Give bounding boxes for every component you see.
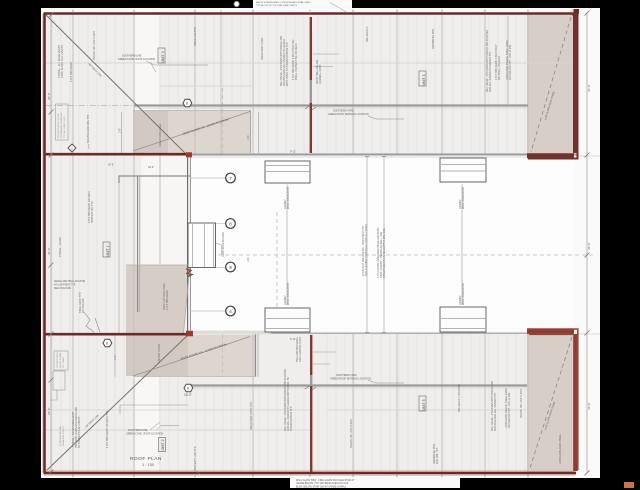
svg-text:PREFIN. MTL CAP FLASH: PREFIN. MTL CAP FLASH — [520, 389, 523, 418]
svg-text:AND FLASHING DRIP EDGE CONT. A: AND FLASHING DRIP EDGE CONT. ALL SIDES — [365, 224, 368, 276]
svg-text:28'-0": 28'-0" — [47, 407, 51, 415]
svg-text:PROTECT. BD. TYP.: PROTECT. BD. TYP. — [91, 201, 94, 223]
svg-text:GREEN CONC. ROOF LOCATION: GREEN CONC. ROOF LOCATION — [126, 432, 163, 435]
svg-text:AND VEL. DRAINS TO LEADER TYP.: AND VEL. DRAINS TO LEADER TYP. — [489, 51, 492, 92]
svg-text:STORM SYSTEM TYP.: STORM SYSTEM TYP. — [290, 406, 293, 431]
svg-text:RIDGE VENT CONT. TYP.: RIDGE VENT CONT. TYP. — [250, 402, 253, 430]
svg-text:RIDGE LINE TYP.: RIDGE LINE TYP. — [194, 26, 197, 46]
svg-text:SCUPPER AND VEL. DRAINS TYP.: SCUPPER AND VEL. DRAINS TYP. — [494, 392, 497, 431]
svg-text:ON PURLINS: ON PURLINS — [82, 298, 85, 313]
svg-text:CRICKET SLOPE: CRICKET SLOPE — [158, 344, 161, 363]
svg-text:RWL AND O.F. SCUPPER: RWL AND O.F. SCUPPER — [458, 384, 461, 412]
svg-text:ROOF OVER ENTRY: ROOF OVER ENTRY — [463, 186, 465, 209]
svg-text:UNIT 1: UNIT 1 — [106, 245, 110, 256]
svg-text:RWL AND O.F.: RWL AND O.F. — [366, 26, 369, 42]
svg-text:GREEN CONC. ROOF LOCATION: GREEN CONC. ROOF LOCATION — [118, 58, 155, 61]
svg-text:TYPICAL - 40 MID: TYPICAL - 40 MID — [59, 237, 62, 257]
svg-text:SEE CIVIL DWG: SEE CIVIL DWG — [54, 288, 71, 290]
svg-text:28'-0": 28'-0" — [47, 92, 51, 100]
svg-text:1 : 150: 1 : 150 — [142, 462, 155, 467]
svg-text:SWALE AND RWL LOCATION: SWALE AND RWL LOCATION — [54, 280, 85, 283]
svg-text:GREEN ROOF SETBACK LOCATION: GREEN ROOF SETBACK LOCATION — [330, 377, 371, 380]
svg-text:6: 6 — [106, 342, 108, 346]
svg-text:36'-0": 36'-0" — [587, 242, 591, 250]
svg-text:1'-6": 1'-6" — [119, 128, 122, 133]
svg-text:LEADER AT LOW PT: LEADER AT LOW PT — [62, 425, 65, 446]
svg-text:GREEN ROOF SETBACK LOCATION: GREEN ROOF SETBACK LOCATION — [328, 113, 369, 116]
svg-text:TYP. SIDES: TYP. SIDES — [63, 356, 65, 368]
svg-text:PREFIN. MTL CAP FLASH: PREFIN. MTL CAP FLASH — [350, 419, 353, 448]
svg-text:9'-11": 9'-11" — [290, 338, 296, 341]
svg-text:34'-0": 34'-0" — [587, 84, 591, 92]
svg-text:ROLL CLASS 'BBQ' - FIRE ALARM: ROLL CLASS 'BBQ' - FIRE ALARM PACKAGE ST… — [296, 479, 355, 482]
svg-text:TO STORM TYP. AT LOW PT.: TO STORM TYP. AT LOW PT. — [78, 416, 81, 448]
svg-text:MECH. SCREEN WALL LOCATION SEE: MECH. SCREEN WALL LOCATION SEE DETAIL 5/… — [256, 1, 312, 4]
svg-text:1-60: 1-60 — [248, 257, 250, 262]
svg-text:ROOF OVER ENTRY: ROOF OVER ENTRY — [288, 282, 290, 305]
svg-text:UNIT 3: UNIT 3 — [161, 51, 165, 62]
svg-text:CAP FLASHING CONT.: CAP FLASHING CONT. — [299, 336, 302, 362]
svg-text:ROOF OVER ENTRY: ROOF OVER ENTRY — [463, 282, 465, 305]
svg-text:SCUPPER AND RWL TYP.: SCUPPER AND RWL TYP. — [87, 114, 90, 143]
svg-text:FIREWALL CONT.: FIREWALL CONT. — [319, 64, 322, 84]
svg-text:ROOF STAIR ACCESS: ROOF STAIR ACCESS — [222, 232, 225, 257]
svg-text:WITH CONN. TO STORM SYSTEM TYP: WITH CONN. TO STORM SYSTEM TYP. — [286, 42, 289, 86]
svg-text:BLDG. BELOW STAIR GAS AT GRADE: BLDG. BELOW STAIR GAS AT GRADE IN WALL — [296, 485, 347, 488]
svg-text:LOW SLOPE ROOF PANEL: LOW SLOPE ROOF PANEL — [559, 433, 562, 464]
svg-text:ROOF OVER ENTRY: ROOF OVER ENTRY — [288, 186, 290, 209]
svg-text:2 PLY SBS MEMB. ON DECK TYP.: 2 PLY SBS MEMB. ON DECK TYP. — [106, 410, 109, 448]
svg-text:AND RWL TYP.: AND RWL TYP. — [436, 447, 439, 464]
svg-text:CRICKET MIN 2% SLOPE: CRICKET MIN 2% SLOPE — [58, 113, 60, 138]
svg-text:36'-0": 36'-0" — [47, 247, 51, 255]
svg-text:6: 6 — [187, 387, 189, 391]
svg-text:UNIT 2: UNIT 2 — [161, 439, 165, 450]
svg-text:GREEN ROOF AREA: GREEN ROOF AREA — [159, 123, 162, 147]
svg-text:16'-0": 16'-0" — [184, 393, 192, 397]
svg-text:SLOPE TO RWL: SLOPE TO RWL — [60, 352, 62, 368]
svg-text:1-60: 1-60 — [248, 135, 250, 140]
svg-text:CRICKET MIN 2%: CRICKET MIN 2% — [57, 351, 59, 368]
svg-text:UNIT 5: UNIT 5 — [422, 399, 426, 410]
svg-text:29'-6": 29'-6" — [148, 166, 154, 169]
svg-text:6: 6 — [186, 102, 188, 106]
svg-text:RIDGE VENT CONT.: RIDGE VENT CONT. — [261, 37, 264, 60]
svg-text:SCUPPER RWL AND: SCUPPER RWL AND — [59, 426, 62, 446]
svg-text:PREFIN. MTL CAP FLASH: PREFIN. MTL CAP FLASH — [93, 31, 96, 60]
svg-text:19'-6": 19'-6" — [108, 164, 114, 167]
svg-text:TYP. ALL ROOF TOP UNITS AND VE: TYP. ALL ROOF TOP UNITS AND VENTS — [256, 4, 298, 7]
svg-text:ISO INSUL. ON DECK: ISO INSUL. ON DECK — [498, 56, 501, 80]
svg-text:1-10: 1-10 — [115, 355, 117, 360]
svg-text:TYP. ALL SIDES U.N.O.: TYP. ALL SIDES U.N.O. — [63, 115, 66, 138]
svg-text:CANOPY: CANOPY — [459, 295, 462, 305]
svg-text:TO RWL AND OVERFLOW: TO RWL AND OVERFLOW — [60, 113, 63, 138]
svg-text:STRUCTURE AT 2 IN BELOW TYP. M: STRUCTURE AT 2 IN BELOW TYP. MIN. SIZE — [383, 228, 386, 278]
svg-text:CONT. ALONG FULL LENGTH: CONT. ALONG FULL LENGTH — [61, 45, 64, 78]
svg-text:2 PLY SBS MEMB.: 2 PLY SBS MEMB. — [166, 289, 169, 310]
svg-text:CANOPY: CANOPY — [284, 295, 287, 305]
svg-text:CANOPY: CANOPY — [459, 199, 462, 209]
svg-text:UNIT 4: UNIT 4 — [422, 74, 426, 85]
svg-text:ON PURLINS TYP. - 3 IN 12 MIN.: ON PURLINS TYP. - 3 IN 12 MIN. — [508, 392, 511, 428]
svg-text:PROPERTY LINE TYP.: PROPERTY LINE TYP. — [194, 446, 197, 471]
svg-text:ON PURLINS TYP. - 3 IN 12 MIN.: ON PURLINS TYP. - 3 IN 12 MIN. — [509, 44, 512, 80]
svg-text:34'-0": 34'-0" — [587, 402, 591, 410]
svg-text:CANOPY: CANOPY — [284, 199, 287, 209]
svg-text:2 PLY SBS MEMB.: 2 PLY SBS MEMB. — [70, 61, 73, 82]
svg-text:GRADE BELOW. TYP. 2M FIREPLACE: GRADE BELOW. TYP. 2M FIREPLACES NAT GAS — [296, 482, 349, 485]
svg-text:INSUL. PROTECT. BD. ON DECK: INSUL. PROTECT. BD. ON DECK — [295, 43, 298, 80]
svg-text:AT LOW POINT TYP.: AT LOW POINT TYP. — [54, 283, 76, 286]
svg-text:RAINWATER PIPE: RAINWATER PIPE — [432, 28, 435, 49]
svg-text:9'-11": 9'-11" — [290, 151, 296, 154]
